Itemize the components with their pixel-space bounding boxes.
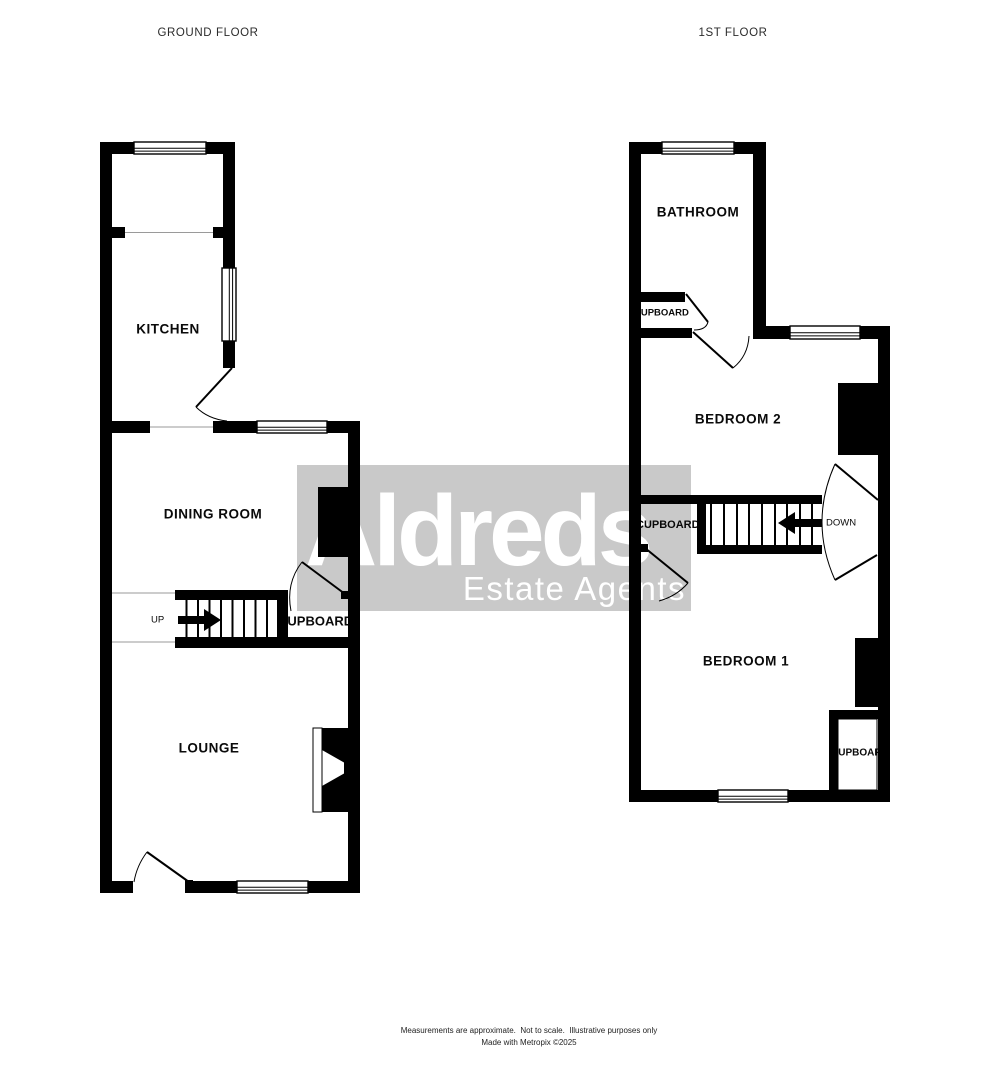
chimney-breast	[838, 383, 878, 455]
window	[222, 268, 236, 341]
door-swing	[134, 852, 193, 890]
up-arrow-icon	[178, 609, 221, 631]
door-swing	[693, 332, 749, 368]
window	[790, 326, 860, 339]
window	[134, 142, 206, 154]
window	[237, 881, 308, 893]
window	[718, 790, 788, 802]
door-swing	[641, 544, 688, 601]
ground-floor-plan	[100, 142, 360, 893]
stairs	[711, 504, 822, 545]
first-walls	[629, 142, 890, 802]
window	[257, 421, 327, 433]
cupboard-outline	[838, 719, 877, 790]
floorplan-drawing	[0, 0, 989, 1080]
floorplan-page: GROUND FLOOR 1ST FLOOR KITCHEN DINING RO…	[0, 0, 989, 1080]
chimney-breast	[318, 487, 348, 557]
door-swing	[196, 368, 232, 421]
first-floor-plan	[629, 142, 890, 802]
ground-divider-lines	[112, 233, 213, 643]
stairs	[175, 590, 360, 648]
door-swing	[290, 562, 349, 611]
door-swing	[686, 294, 708, 330]
fireplace	[313, 728, 348, 812]
window	[662, 142, 734, 154]
door-swing	[822, 464, 878, 580]
chimney-breast	[855, 638, 878, 707]
